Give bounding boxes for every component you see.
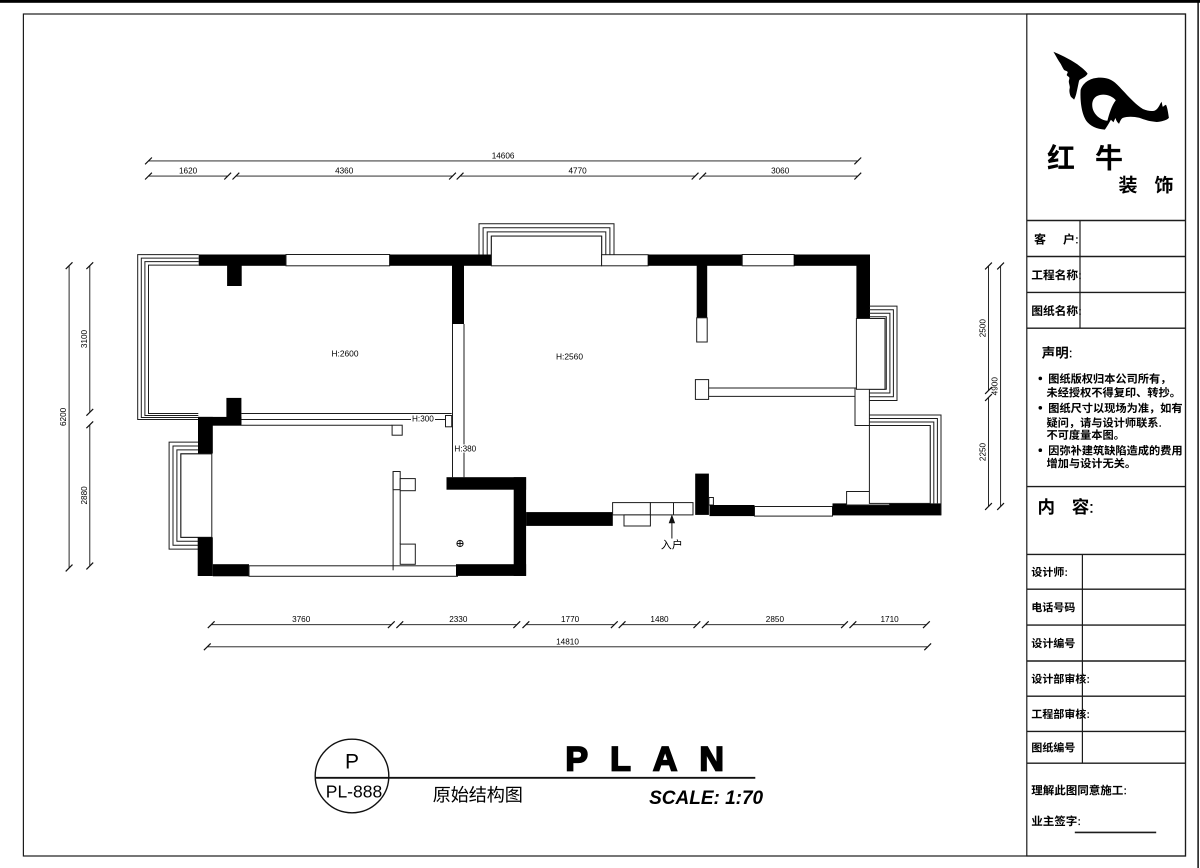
svg-text:2250: 2250 <box>979 442 988 461</box>
svg-text:6200: 6200 <box>59 407 68 426</box>
svg-text:1710: 1710 <box>880 615 899 624</box>
svg-text:3060: 3060 <box>771 167 790 176</box>
svg-text:PLAN: PLAN <box>565 741 746 779</box>
svg-text:3760: 3760 <box>292 615 311 624</box>
svg-text:H:300: H:300 <box>412 415 434 424</box>
svg-text:2880: 2880 <box>80 486 89 505</box>
svg-text:2500: 2500 <box>979 319 988 338</box>
svg-text:P: P <box>345 751 359 774</box>
svg-text:4770: 4770 <box>568 167 587 176</box>
svg-text:PL-888: PL-888 <box>326 782 382 802</box>
svg-text:3100: 3100 <box>80 329 89 348</box>
svg-text:H:380: H:380 <box>454 444 476 453</box>
svg-text:1770: 1770 <box>561 615 580 624</box>
svg-text:SCALE: 1:70: SCALE: 1:70 <box>649 788 763 809</box>
svg-text:2850: 2850 <box>766 615 785 624</box>
svg-text:H:2560: H:2560 <box>556 352 583 362</box>
svg-text:1620: 1620 <box>179 167 198 176</box>
svg-text:14810: 14810 <box>556 637 579 646</box>
svg-text:H:2600: H:2600 <box>331 349 358 359</box>
svg-text:4360: 4360 <box>335 167 354 176</box>
svg-text:1480: 1480 <box>650 615 669 624</box>
svg-text:14606: 14606 <box>492 151 515 160</box>
svg-text:4900: 4900 <box>991 377 1000 396</box>
svg-text:2330: 2330 <box>449 615 468 624</box>
